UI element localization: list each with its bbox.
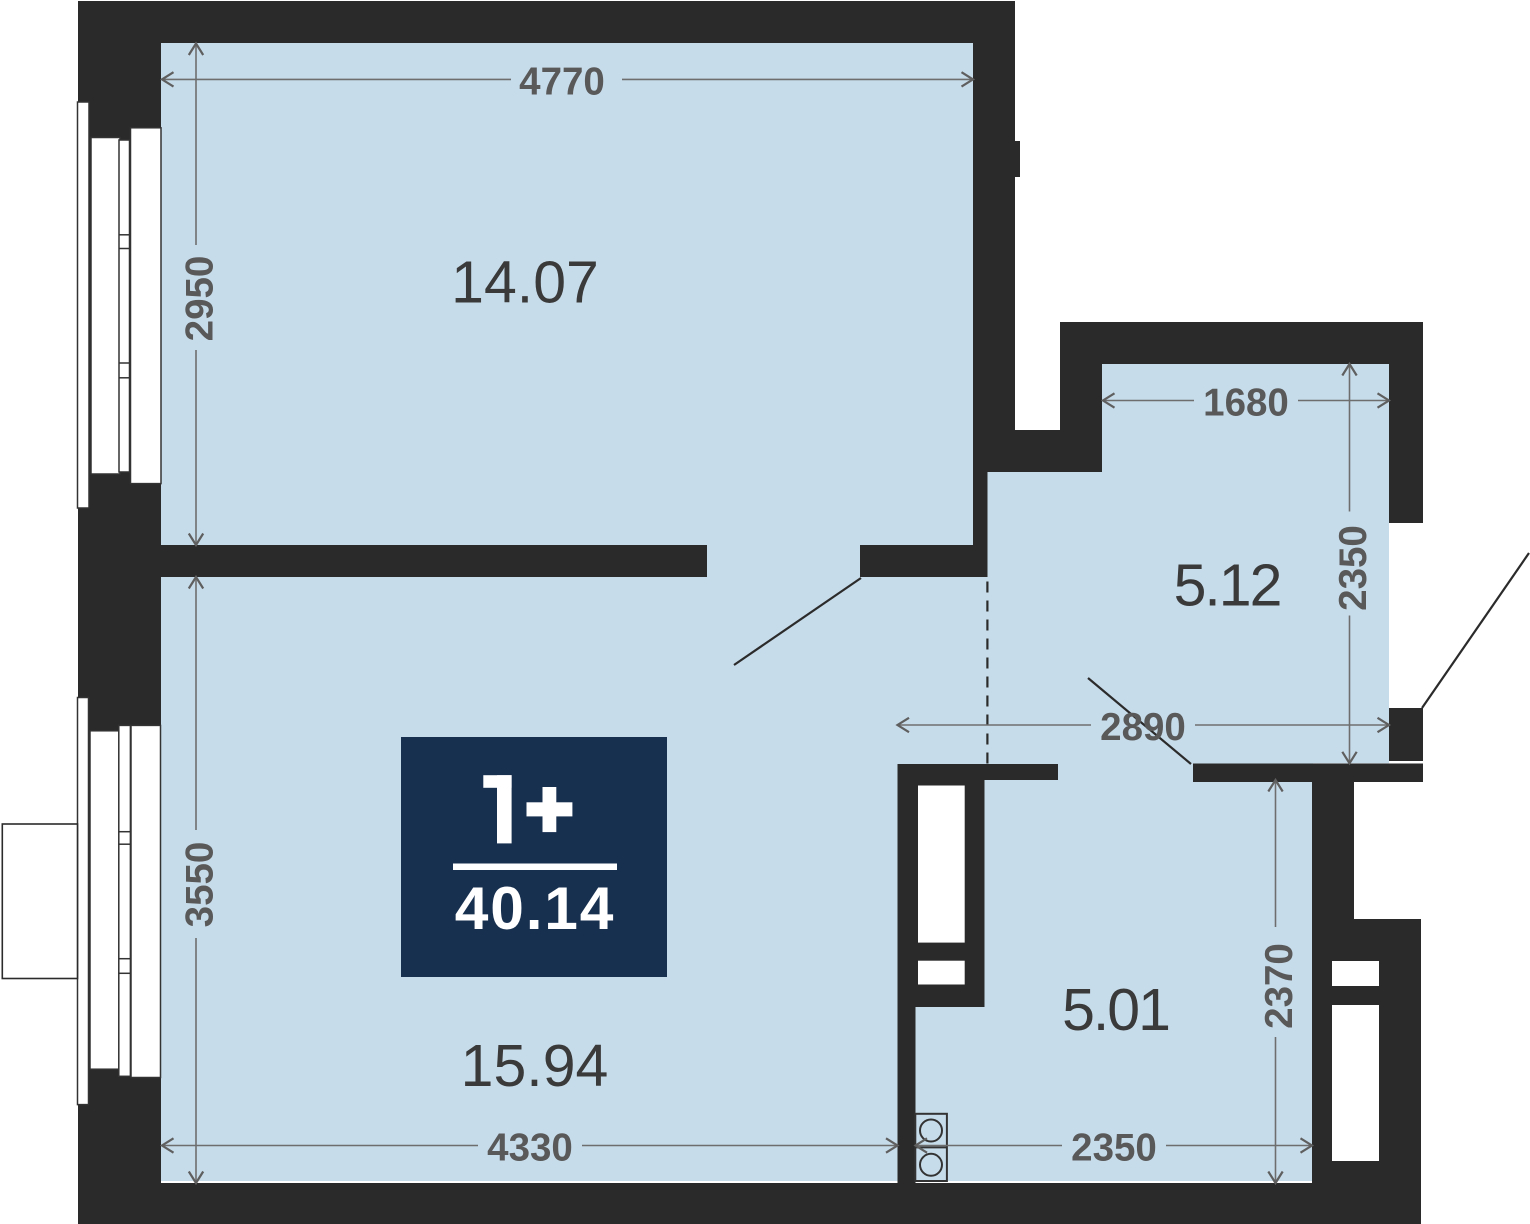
svg-text:40.14: 40.14 [455, 874, 615, 942]
svg-text:2370: 2370 [1258, 943, 1301, 1029]
svg-text:5.01: 5.01 [1062, 977, 1169, 1043]
svg-text:15.94: 15.94 [461, 1033, 609, 1099]
svg-text:2350: 2350 [1071, 1127, 1157, 1170]
svg-text:4770: 4770 [519, 61, 605, 104]
svg-text:5.12: 5.12 [1174, 553, 1281, 619]
svg-text:4330: 4330 [487, 1127, 573, 1170]
svg-text:1680: 1680 [1203, 382, 1289, 425]
svg-text:14.07: 14.07 [451, 250, 599, 316]
svg-text:3550: 3550 [179, 842, 222, 928]
svg-text:2350: 2350 [1332, 525, 1375, 611]
svg-text:2950: 2950 [179, 256, 222, 342]
svg-text:2890: 2890 [1100, 706, 1186, 749]
